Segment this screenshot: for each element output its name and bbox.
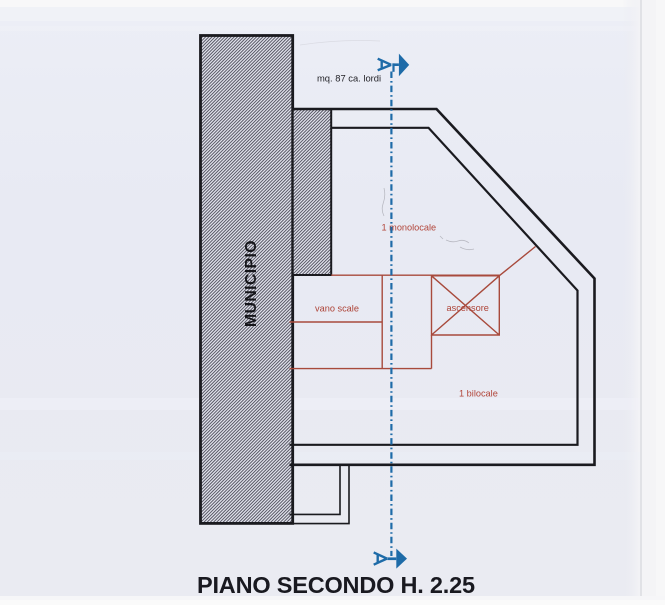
svg-text:PIANO SECONDO H. 2.25: PIANO SECONDO H. 2.25 — [197, 572, 475, 598]
svg-text:1 monolocale: 1 monolocale — [382, 223, 437, 233]
svg-text:1 bilocale: 1 bilocale — [459, 388, 498, 398]
svg-text:MUNICIPIO: MUNICIPIO — [243, 240, 260, 327]
svg-text:vano scale: vano scale — [315, 303, 359, 313]
svg-text:mq. 87 ca. lordi: mq. 87 ca. lordi — [317, 73, 381, 84]
svg-text:ascensore: ascensore — [447, 303, 489, 313]
